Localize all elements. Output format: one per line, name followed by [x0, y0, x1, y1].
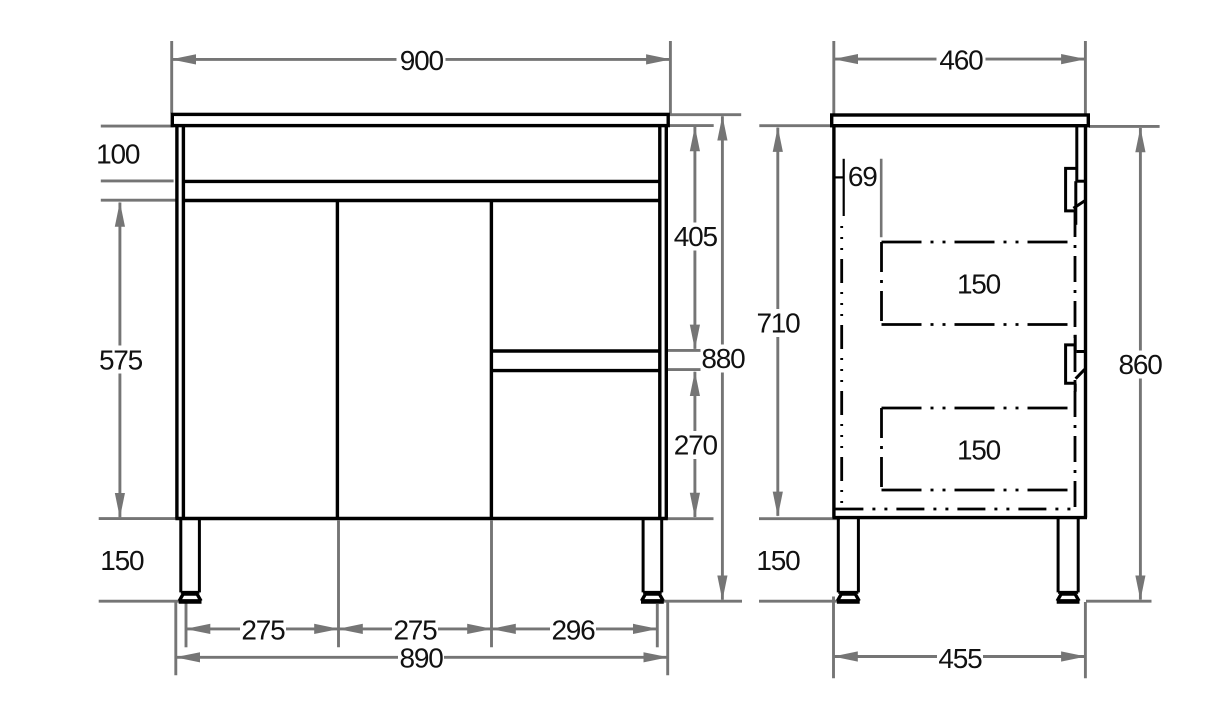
svg-text:710: 710 — [756, 308, 800, 339]
svg-text:100: 100 — [96, 138, 140, 169]
svg-text:405: 405 — [674, 221, 718, 252]
svg-text:575: 575 — [99, 345, 143, 376]
svg-text:460: 460 — [939, 45, 983, 76]
svg-text:69: 69 — [848, 161, 877, 192]
svg-text:296: 296 — [551, 615, 595, 646]
svg-text:860: 860 — [1119, 349, 1163, 380]
svg-text:270: 270 — [674, 430, 718, 461]
svg-text:455: 455 — [938, 643, 982, 674]
svg-text:275: 275 — [241, 615, 285, 646]
svg-text:275: 275 — [393, 615, 437, 646]
svg-text:150: 150 — [957, 435, 1001, 466]
svg-text:150: 150 — [100, 545, 144, 576]
svg-text:150: 150 — [756, 545, 800, 576]
svg-text:890: 890 — [400, 643, 444, 674]
svg-text:150: 150 — [957, 269, 1001, 300]
svg-text:900: 900 — [400, 45, 444, 76]
svg-text:880: 880 — [701, 343, 745, 374]
